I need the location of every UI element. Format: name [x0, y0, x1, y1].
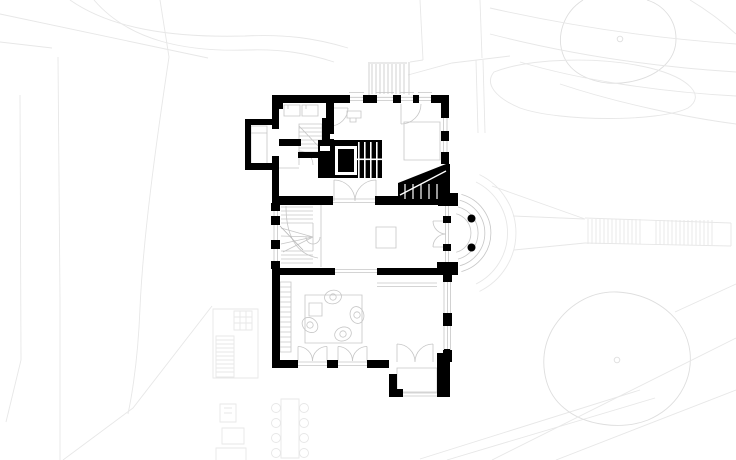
garden-chair [272, 434, 281, 443]
site-road-lower [94, 0, 334, 62]
room-ne-rug [404, 122, 440, 160]
kitchen-notch [320, 146, 330, 151]
porch-interior [397, 368, 437, 392]
garden-ramp-steps-right [656, 220, 712, 245]
floor-plan-canvas [0, 0, 736, 460]
wall-left-upper-4 [272, 166, 279, 198]
wall2-left [272, 268, 335, 275]
tree-canopy-se [544, 292, 691, 425]
glazing-pier-1 [443, 313, 452, 326]
room-ne-sideboard [347, 111, 361, 122]
site-boundary-short [0, 42, 52, 48]
wall-bottom-a [272, 360, 298, 368]
armchair-seat [340, 331, 346, 337]
structures-sw [216, 404, 246, 460]
window-glazing-left [274, 206, 278, 264]
armchair [299, 314, 321, 335]
walls-black [245, 95, 476, 397]
armchair [323, 289, 342, 306]
site-plan [0, 0, 736, 460]
armchair-seat [354, 312, 360, 318]
wall-top-pier-3 [413, 95, 419, 103]
bay-pier-top [438, 193, 458, 206]
site-vertical-west [58, 57, 60, 460]
exterior-stair-north [369, 62, 409, 95]
site-vertical-far-west [6, 95, 21, 422]
door-swing-bay [433, 221, 446, 247]
window-glazing-top [349, 93, 432, 101]
stair-window-jamb-3 [271, 240, 280, 249]
garden-table [281, 399, 299, 458]
site-diagonals-se [492, 284, 736, 460]
annex-wall-bottom [245, 163, 275, 170]
corner-ne [441, 95, 449, 118]
site-paths-north [420, 0, 485, 133]
stair-window-jamb-2 [271, 216, 280, 225]
site-path-sw [63, 306, 212, 460]
plan-light-details [251, 62, 491, 396]
porch-wall-foot [389, 389, 403, 397]
garden-chair [300, 449, 309, 458]
wall-left-lower [272, 265, 280, 368]
door-swing-porch [397, 344, 433, 362]
bay-glazing [446, 205, 449, 262]
garden-chair [272, 449, 281, 458]
wall-left-upper-2 [272, 119, 279, 129]
wall-right-pier-2 [441, 152, 449, 164]
glazing-pier-2 [443, 350, 452, 362]
annex-interior [251, 126, 267, 164]
garden-chair [300, 419, 309, 428]
wall-bottom-pier [327, 360, 338, 368]
wall-top-pier-1 [363, 95, 377, 103]
wall-interior-horizontal [279, 139, 301, 146]
wall2-right [377, 268, 439, 275]
wall-shelf-strip [280, 282, 291, 352]
armchair-seat [307, 322, 313, 328]
living-side-table [309, 303, 322, 316]
door-swing-south-1 [298, 347, 327, 362]
site-contour-nw-diagonal [0, 14, 208, 58]
main-stair-newel [286, 206, 320, 258]
kitchen-divider [356, 159, 382, 161]
door-swing-room-ne [401, 104, 421, 124]
outbuilding-sw-stair [216, 336, 234, 377]
bay-pier-stub [443, 273, 452, 282]
main-stair-cut-line [280, 226, 303, 250]
wall1-opening-lines [333, 199, 375, 203]
site-contour-loop-ne [490, 60, 695, 118]
garden-chair [300, 434, 309, 443]
wall-bottom-b [367, 360, 389, 368]
garden-chair [300, 404, 309, 413]
door-swing-south-2 [338, 347, 367, 362]
bay-step-arcs [456, 194, 491, 271]
living-beam-lines [377, 283, 437, 287]
site-curve-west [128, 57, 169, 414]
garden-ramp-outline [585, 218, 731, 246]
floor-plan-drawing [0, 0, 736, 460]
wall-service-stair-bottom [298, 152, 330, 158]
bay-column-2 [468, 244, 476, 252]
wall-top-pier-2 [393, 95, 401, 103]
wall-top-a [272, 95, 350, 103]
site-road-upper [70, 0, 348, 48]
bay-mullion-2 [443, 244, 451, 251]
bay-column-1 [468, 215, 476, 223]
tree-trunk-se [614, 357, 620, 363]
garden-chair [272, 419, 281, 428]
stair-window-jamb-1 [271, 203, 280, 211]
door-swing-hall [334, 180, 376, 201]
middle-room-table [376, 227, 396, 248]
outbuilding-sw-grid [234, 311, 252, 330]
garden-chair [272, 404, 281, 413]
armchair [348, 305, 366, 325]
tree-trunk-ne [617, 36, 623, 42]
room-nw-counters [284, 105, 318, 116]
armchair [333, 325, 354, 344]
wall2-opening-lines [335, 270, 377, 273]
bay-mullion-1 [443, 216, 451, 223]
garden-ramp-steps-left [588, 219, 640, 244]
annex-wall-left [245, 119, 251, 170]
wall-right-pier-1 [441, 131, 449, 141]
kitchen-island-inner [338, 149, 354, 172]
wall1-left [272, 196, 333, 205]
